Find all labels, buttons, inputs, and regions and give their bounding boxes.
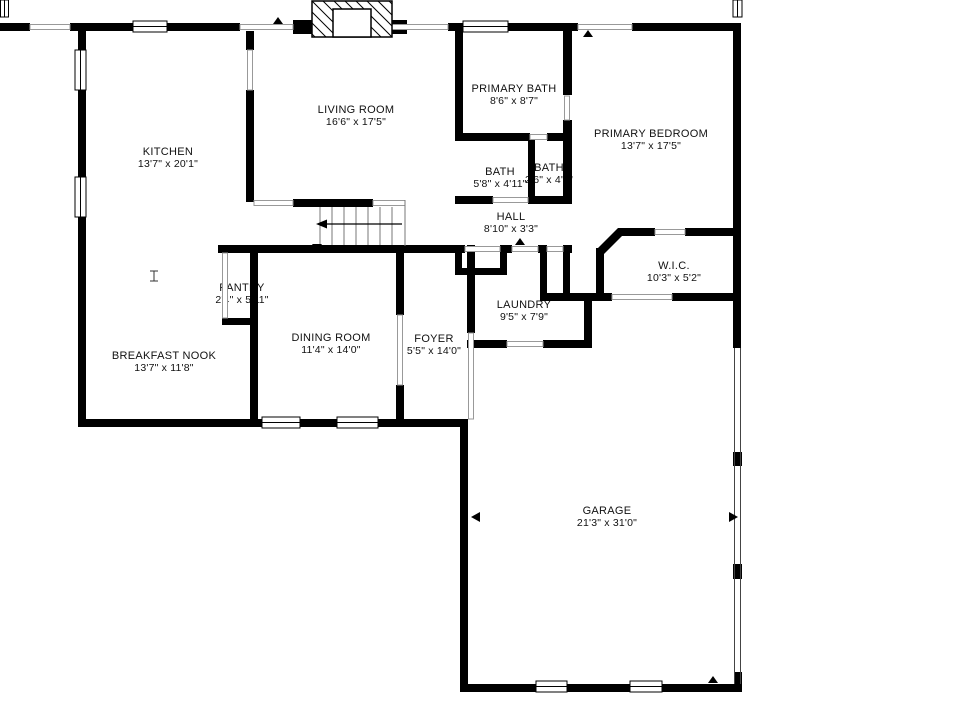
window-icon [337,417,378,428]
fireplace-icon [312,1,392,37]
scale-mark-icon [150,271,158,281]
stairs-direction-arrow [316,220,402,229]
window-icon [75,177,86,217]
window-icon [1,0,9,17]
walls [0,20,742,692]
window-icon [133,21,167,32]
window-icon [536,681,567,692]
windows [1,0,743,692]
window-icon [463,21,508,32]
window-icon [733,0,742,17]
window-icon [630,681,662,692]
window-icon [262,417,300,428]
window-icon [75,50,86,90]
door-openings [30,25,685,420]
firebox [333,9,371,37]
dimension-tick-icons [150,17,738,683]
floorplan-page: KITCHEN 13'7" x 20'1" LIVING ROOM 16'6" … [0,0,960,720]
floorplan-drawing [0,0,960,720]
